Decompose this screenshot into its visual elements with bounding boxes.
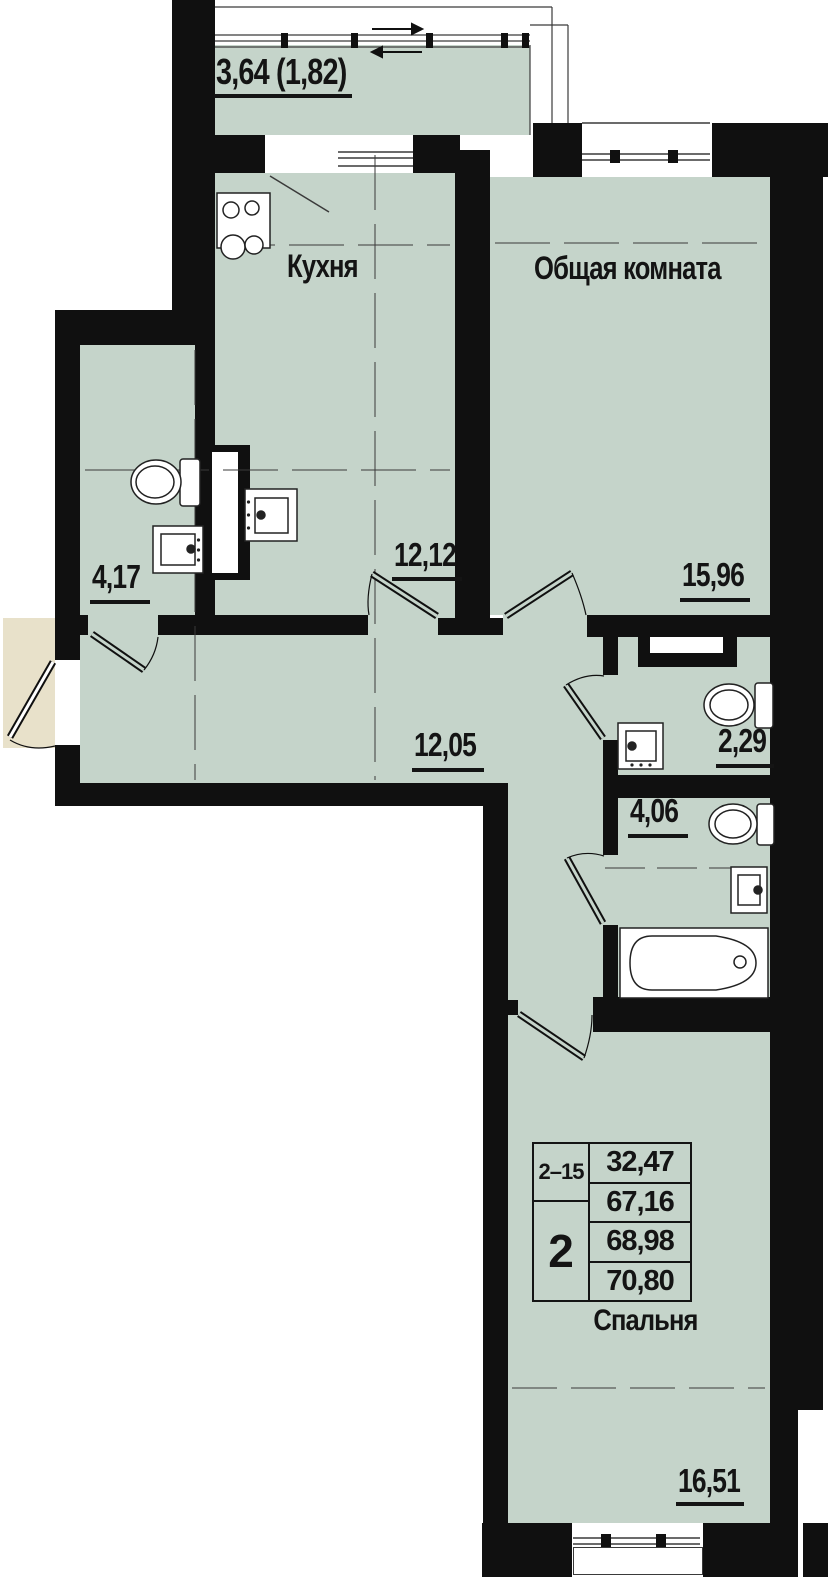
area-underline bbox=[90, 600, 150, 604]
bedroom-window-sill bbox=[573, 1547, 703, 1575]
wall-segment bbox=[158, 615, 368, 635]
wc-area-label: 2,29 bbox=[718, 724, 766, 757]
wall-segment bbox=[533, 123, 582, 177]
hallway-area-label: 12,05 bbox=[414, 728, 476, 761]
wall-segment bbox=[603, 740, 618, 855]
wall-segment bbox=[55, 345, 80, 660]
wall-segment bbox=[770, 1410, 798, 1523]
wall-segment bbox=[172, 0, 215, 310]
wall-segment bbox=[55, 783, 508, 806]
apartment-stamp-table: 2–15 2 32,47 67,16 68,98 70,80 bbox=[532, 1142, 692, 1302]
area-underline bbox=[716, 764, 774, 768]
room-floor-corridor bbox=[505, 618, 603, 1013]
area-underline bbox=[412, 768, 484, 772]
door-opening-floor bbox=[368, 615, 438, 635]
door-opening-floor bbox=[603, 855, 618, 925]
wall-segment bbox=[603, 925, 618, 997]
wall-segment bbox=[603, 637, 618, 675]
wall-segment bbox=[455, 150, 490, 618]
wall-segment bbox=[482, 1523, 572, 1577]
living-window-recess bbox=[582, 123, 710, 177]
stamp-unit-range: 2–15 bbox=[534, 1144, 588, 1202]
balcony-door-opening bbox=[265, 135, 338, 173]
wall-segment bbox=[55, 745, 80, 783]
wall-segment bbox=[438, 618, 503, 635]
duct-shaft-void bbox=[650, 637, 723, 653]
stamp-room-count: 2 bbox=[534, 1202, 588, 1300]
wall-segment bbox=[770, 177, 823, 1410]
wall-segment bbox=[703, 1523, 798, 1577]
stamp-value: 68,98 bbox=[590, 1223, 690, 1263]
stamp-values-column: 32,47 67,16 68,98 70,80 bbox=[590, 1144, 690, 1300]
living-area-label: 15,96 bbox=[682, 558, 744, 591]
area-underline bbox=[680, 598, 750, 602]
area-underline bbox=[676, 1502, 744, 1506]
wall-segment bbox=[712, 123, 828, 177]
kitchen-window-recess bbox=[338, 135, 413, 173]
wall-segment bbox=[55, 310, 215, 345]
area-underline bbox=[392, 577, 462, 581]
bathroom-area-label: 4,06 bbox=[630, 794, 678, 827]
area-underline bbox=[214, 94, 352, 98]
door-opening-floor bbox=[603, 675, 618, 740]
stamp-value: 67,16 bbox=[590, 1184, 690, 1224]
entrance-vestibule-floor bbox=[3, 618, 57, 748]
wall-segment bbox=[508, 1000, 518, 1015]
duct-shaft-void bbox=[212, 452, 238, 573]
entrance-door-opening bbox=[55, 660, 80, 745]
stamp-value: 32,47 bbox=[590, 1144, 690, 1184]
area-underline bbox=[628, 834, 688, 838]
floor-plan: 3,64 (1,82) Кухня 12,12 Общая комната 15… bbox=[0, 0, 828, 1587]
wall-segment bbox=[803, 1523, 828, 1577]
wall-segment bbox=[593, 997, 770, 1032]
door-opening-floor bbox=[518, 997, 593, 1033]
stamp-left-column: 2–15 2 bbox=[534, 1144, 590, 1300]
door-opening-floor bbox=[88, 615, 158, 635]
kitchen-name-label: Кухня bbox=[287, 250, 358, 282]
living-name-label: Общая комната bbox=[534, 252, 721, 284]
wall-segment bbox=[483, 783, 508, 1523]
kitchen-area-label: 12,12 bbox=[394, 538, 456, 571]
balcony-area-label: 3,64 (1,82) bbox=[216, 54, 347, 90]
door-opening-floor bbox=[503, 615, 587, 637]
wall-segment bbox=[413, 135, 460, 173]
room-floor-living bbox=[490, 177, 770, 615]
wall-segment bbox=[77, 615, 88, 635]
bathroom-small-area-label: 4,17 bbox=[92, 560, 140, 593]
bedroom-name-label: Спальня bbox=[586, 1306, 705, 1336]
wall-segment bbox=[215, 135, 265, 173]
bedroom-area-label: 16,51 bbox=[678, 1464, 740, 1497]
stamp-value: 70,80 bbox=[590, 1263, 690, 1301]
